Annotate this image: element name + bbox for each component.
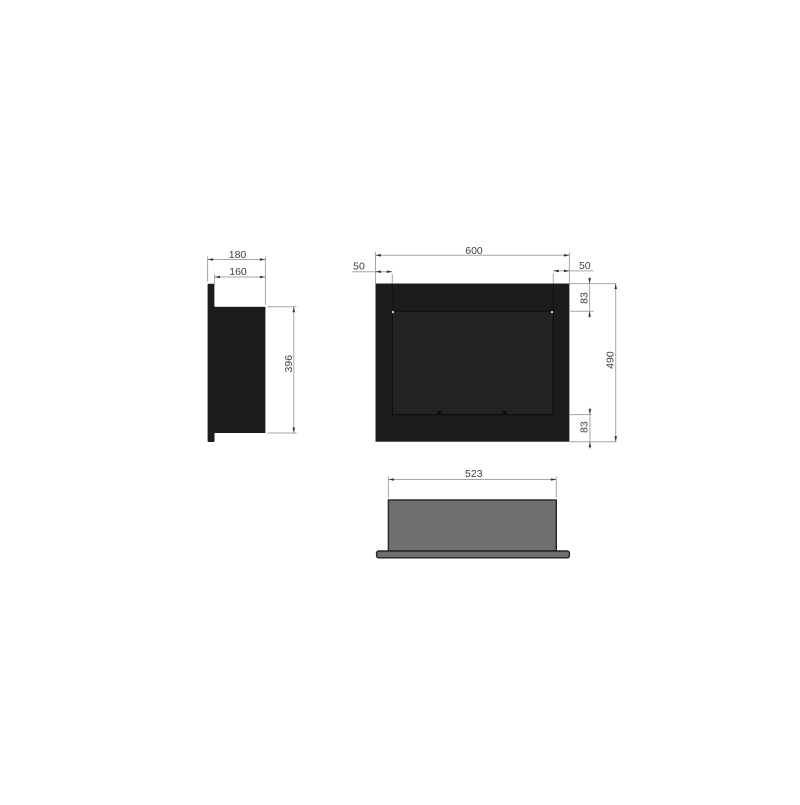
- svg-text:600: 600: [465, 245, 483, 257]
- svg-text:83: 83: [578, 292, 590, 304]
- svg-text:83: 83: [578, 421, 590, 433]
- svg-text:396: 396: [283, 355, 295, 373]
- svg-text:50: 50: [579, 260, 591, 272]
- svg-text:160: 160: [229, 266, 247, 278]
- svg-text:180: 180: [229, 249, 247, 261]
- svg-text:490: 490: [604, 351, 616, 369]
- svg-text:523: 523: [465, 468, 483, 480]
- svg-text:50: 50: [353, 261, 365, 273]
